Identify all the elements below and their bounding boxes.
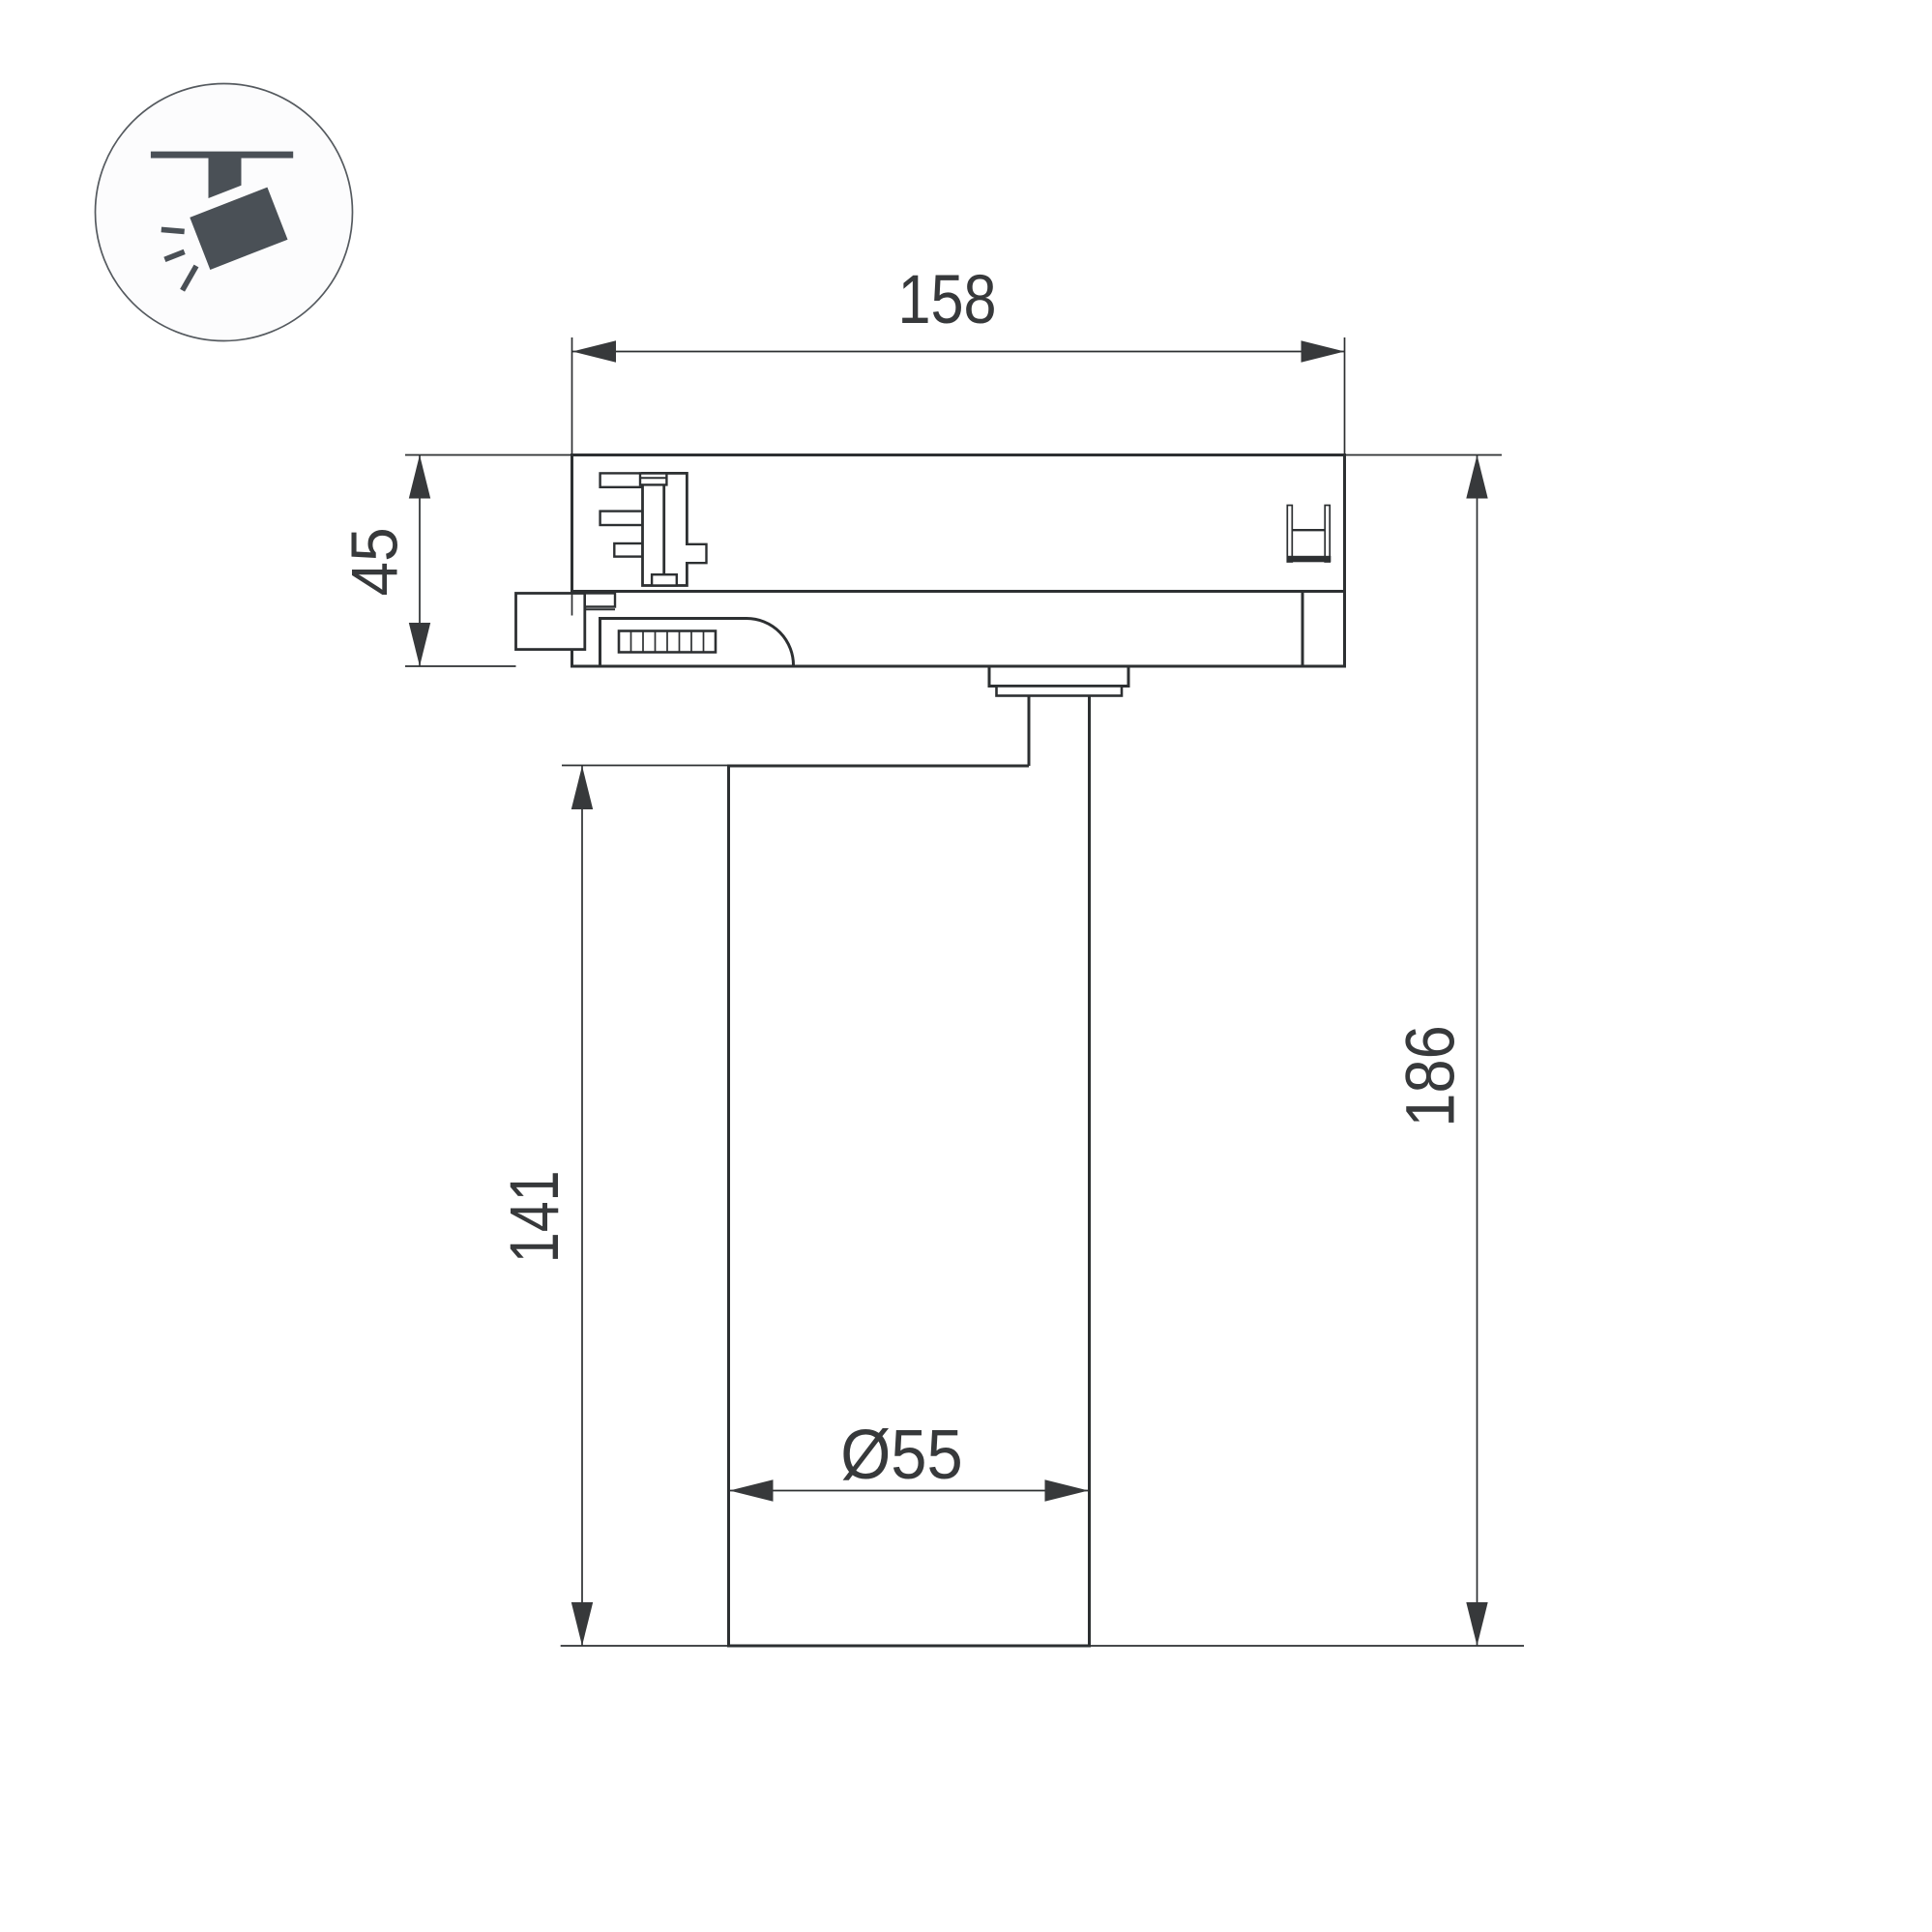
svg-text:158: 158 <box>897 262 996 338</box>
svg-text:186: 186 <box>1392 1025 1469 1127</box>
svg-text:141: 141 <box>496 1170 572 1263</box>
svg-text:Ø55: Ø55 <box>840 1416 963 1494</box>
svg-text:45: 45 <box>337 527 411 596</box>
